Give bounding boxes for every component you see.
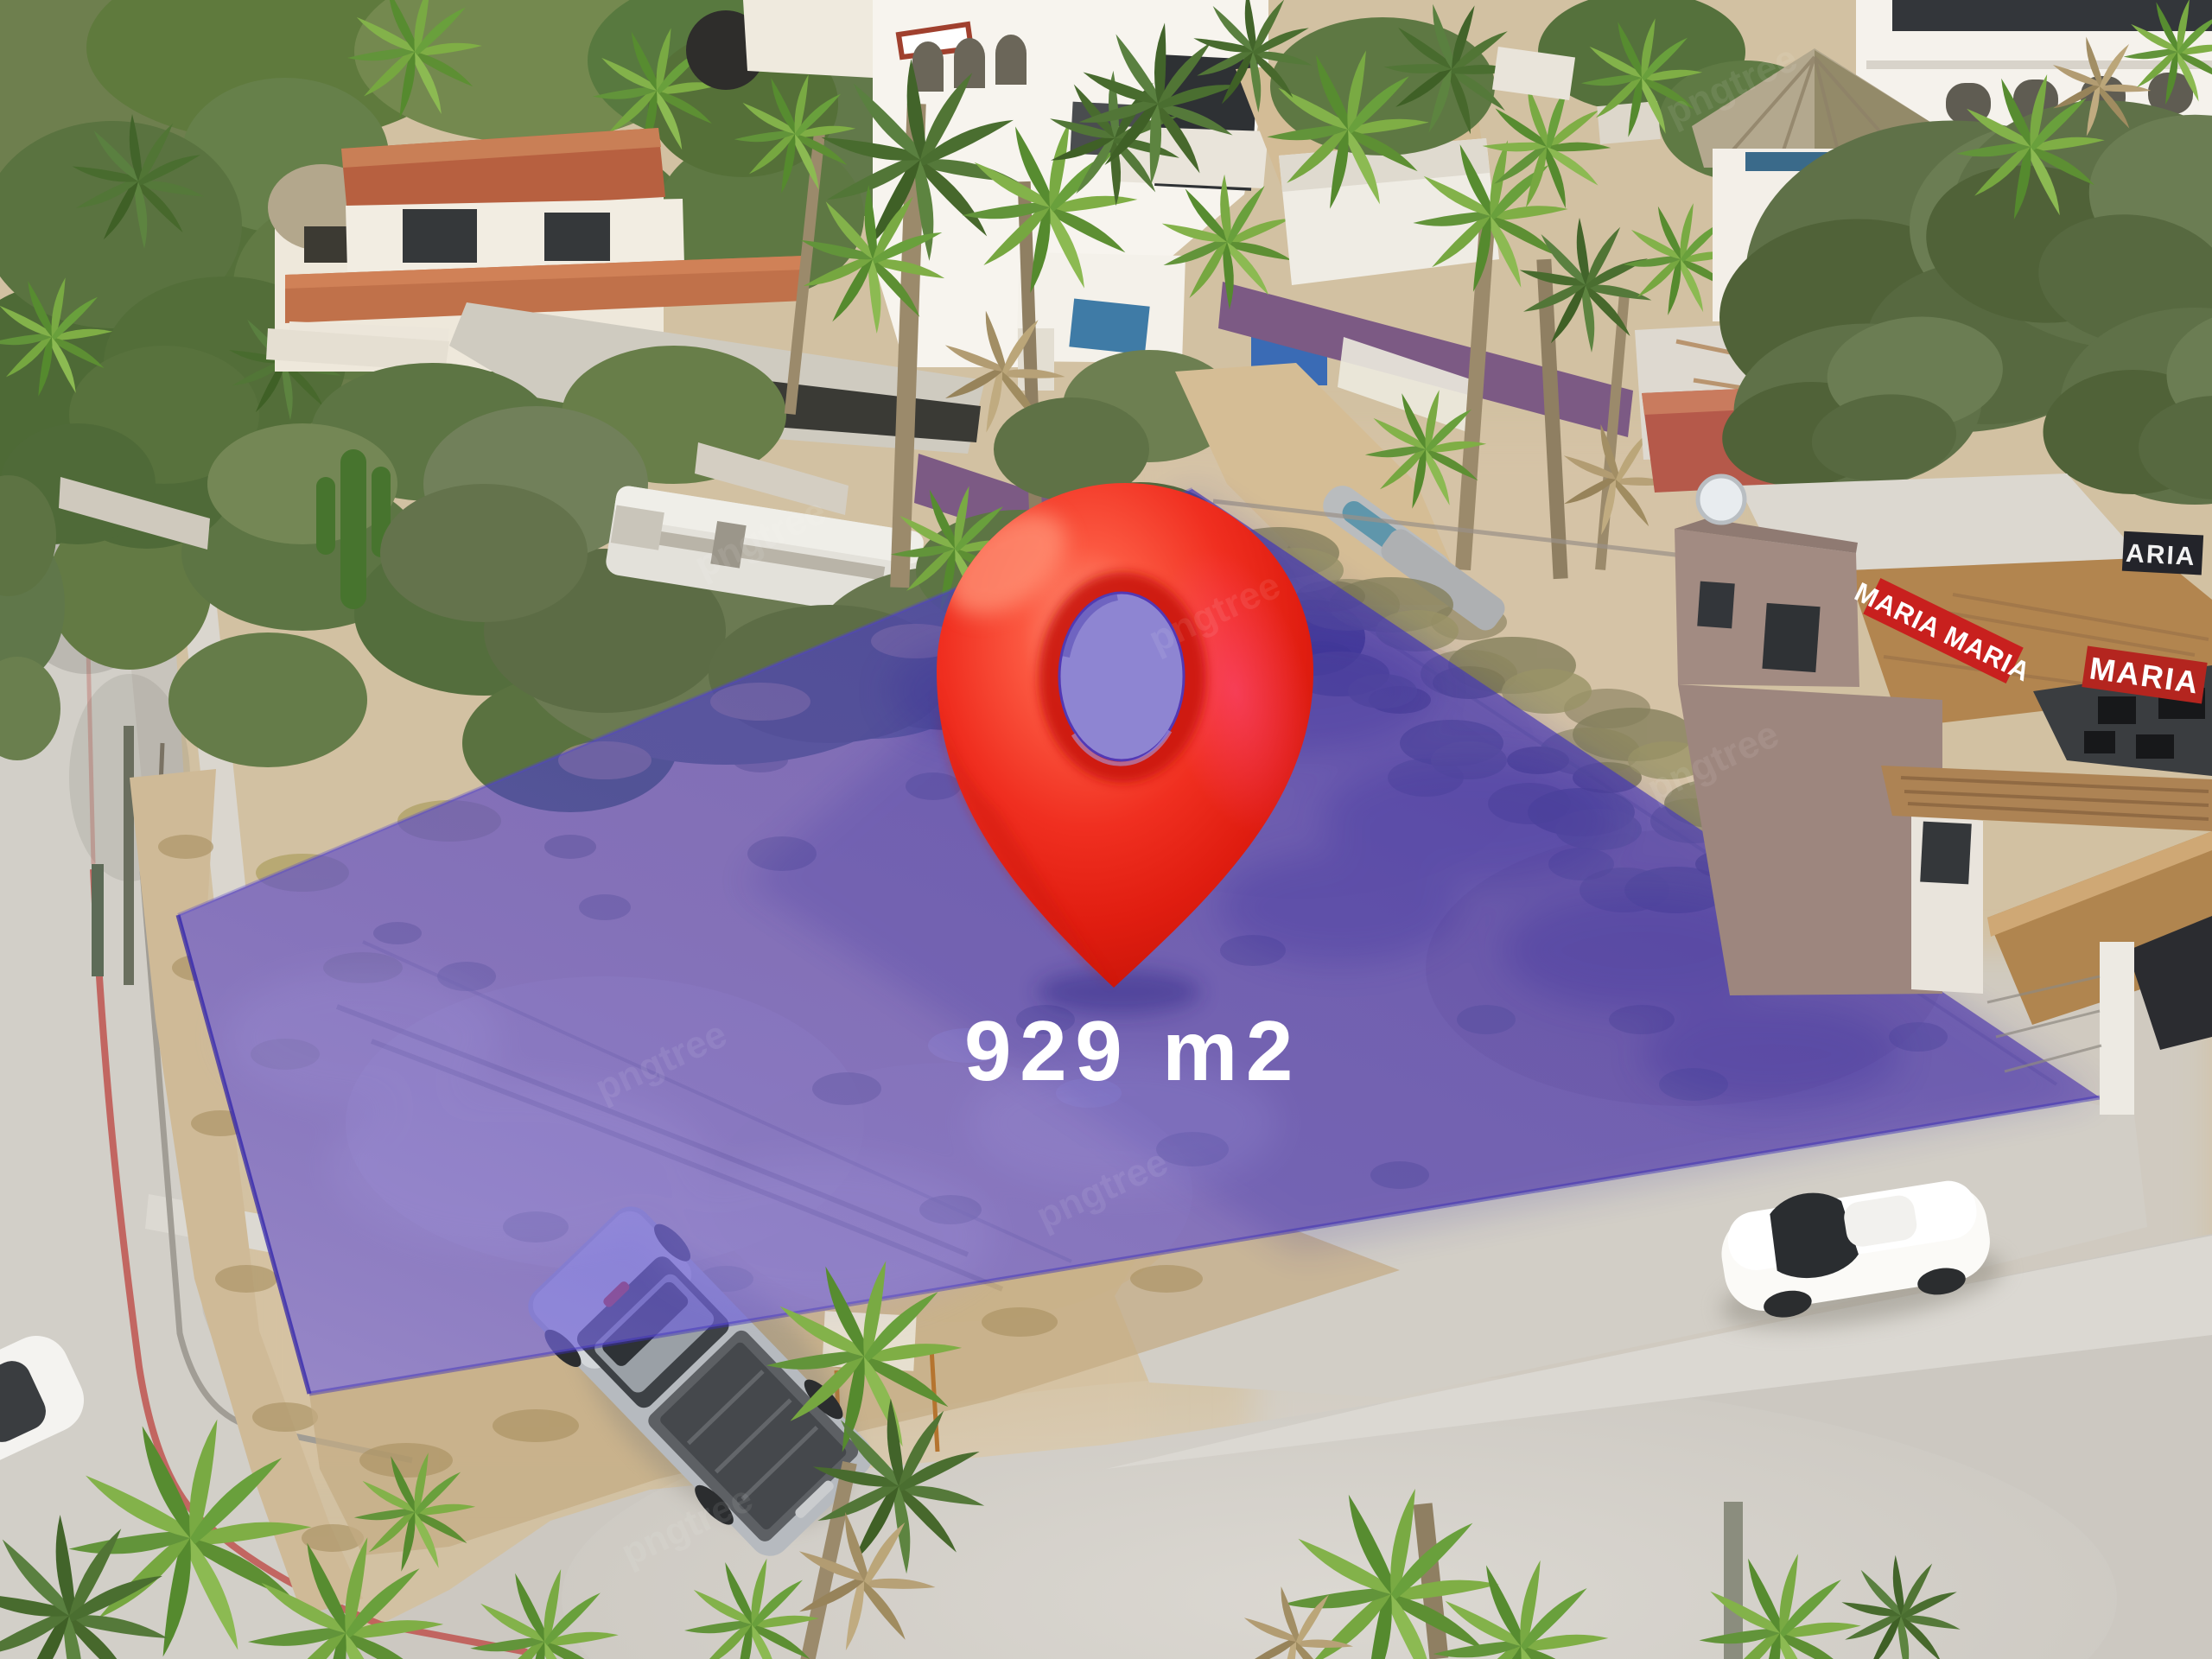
- svg-text:ARIA: ARIA: [2125, 539, 2196, 571]
- svg-text:929 m2: 929 m2: [964, 1003, 1301, 1098]
